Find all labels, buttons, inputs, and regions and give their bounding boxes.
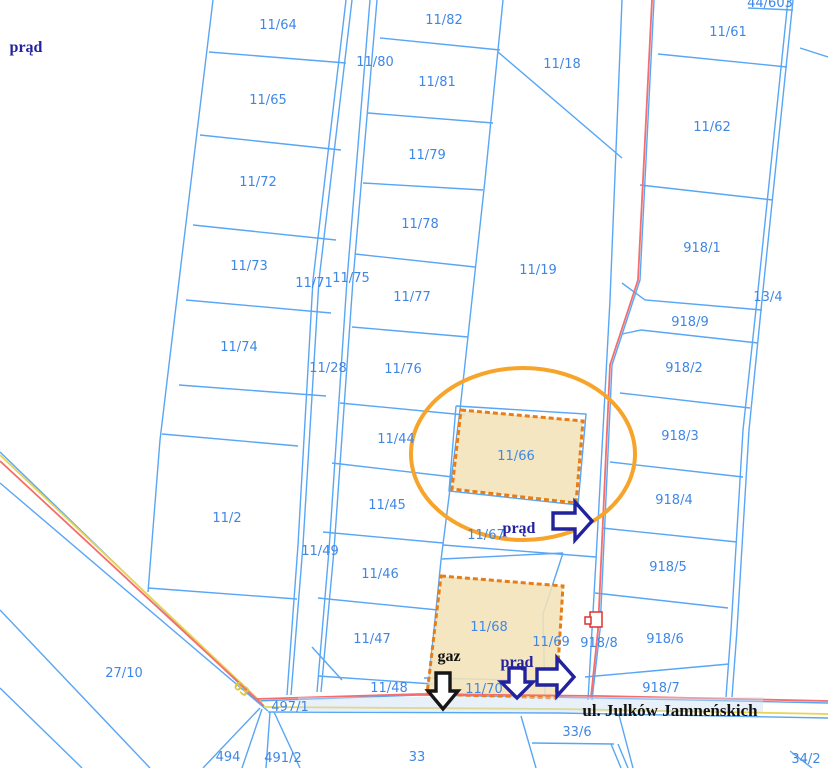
- sep-918-5-918-6: [595, 593, 728, 608]
- parcel-33-6-west: [521, 716, 536, 768]
- parcel-label-11-80: 11/80: [356, 55, 393, 70]
- sep-918-6-918-7: [585, 664, 729, 677]
- parcel-label-33: 33: [409, 750, 426, 765]
- parcel-label-11-47: 11/47: [353, 632, 390, 647]
- sep-11-73-11-74: [186, 300, 331, 313]
- power-line-east-road: [591, 0, 652, 697]
- parcel-label-918-6: 918/6: [646, 632, 683, 647]
- sep-11-74-south: [179, 385, 326, 396]
- parcel-label-918-1: 918/1: [683, 241, 720, 256]
- sep-11-46-11-47: [318, 598, 438, 610]
- street-name-label: ul. Julków Jamneńskich: [582, 701, 758, 720]
- parcel-label-11-62: 11/62: [693, 120, 730, 135]
- parcel-label-918-4: 918/4: [655, 493, 692, 508]
- parcel-label-11-67: 11/67: [467, 528, 504, 543]
- topright-branch-line: [800, 48, 828, 57]
- parcel-label-11-74: 11/74: [220, 340, 257, 355]
- parcel-label-11-66: 11/66: [497, 449, 534, 464]
- parcel-label-11-44: 11/44: [377, 432, 414, 447]
- strip-11-80-east: [321, 0, 377, 692]
- parcel-label-33-6: 33/6: [562, 725, 591, 740]
- building-outline-918-8: [590, 612, 602, 627]
- parcel-label-11-71: 11/71: [295, 276, 332, 291]
- strip-13-4-east: [732, 0, 793, 697]
- parcel-label-918-8: 918/8: [580, 636, 617, 651]
- parcel-label-497-1: 497/1: [271, 700, 308, 715]
- sep-918-4-918-5: [602, 528, 737, 542]
- parcel-33-6-east: [619, 715, 633, 768]
- parcel-label-44-603-clipped: 44/603: [747, 0, 793, 11]
- parcel-label-11-79: 11/79: [408, 148, 445, 163]
- parcel-label-918-7: 918/7: [642, 681, 679, 696]
- sep-11-82-11-81: [380, 38, 500, 50]
- utility-label-prad-mid: prąd: [503, 520, 536, 537]
- sep-11-45-11-46: [323, 532, 443, 543]
- parcel-label-11-76: 11/76: [384, 362, 421, 377]
- parcel-label-11-18: 11/18: [543, 57, 580, 72]
- parcel-label-11-2: 11/2: [212, 511, 241, 526]
- sep-11-62-918-1: [640, 185, 773, 200]
- parcel-label-11-72: 11/72: [239, 175, 276, 190]
- parcel-label-11-61: 11/61: [709, 25, 746, 40]
- parcel-11-2-north: [162, 434, 298, 446]
- parcel-label-11-70: 11/70: [465, 682, 502, 697]
- southwest-line: [0, 688, 82, 768]
- parcel-label-11-73: 11/73: [230, 259, 267, 274]
- leftcol-west-boundary: [148, 0, 213, 592]
- parcel-label-11-75: 11/75: [332, 271, 369, 286]
- parcel-label-11-68: 11/68: [470, 620, 507, 635]
- parcel-label-918-3: 918/3: [661, 429, 698, 444]
- parcel-label-11-81: 11/81: [418, 75, 455, 90]
- sep-918-9-918-2: [622, 330, 758, 343]
- building-outline-918-8-annex: [585, 617, 591, 624]
- sep-918-1-918-9: [622, 283, 762, 310]
- sep-11-79-11-78: [363, 183, 483, 190]
- sep-11-77-11-76: [352, 327, 468, 337]
- parcel-label-11-64: 11/64: [259, 18, 296, 33]
- parcel-label-34-2: 34/2: [791, 752, 820, 767]
- parcel-label-11-28: 11/28: [309, 361, 346, 376]
- sep-11-76-11-44: [340, 403, 465, 415]
- utility-label-prad-bottom: prąd: [501, 654, 534, 671]
- parcel-label-918-2: 918/2: [665, 361, 702, 376]
- parcel-33-6-south: [532, 743, 614, 744]
- parcel-label-11-49: 11/49: [301, 544, 338, 559]
- sep-11-78-11-77: [355, 254, 475, 267]
- utility-label-gaz: gaz: [437, 648, 460, 665]
- parcel-label-11-65: 11/65: [249, 93, 286, 108]
- junction-fan-2: [242, 709, 262, 768]
- parcel-label-918-9: 918/9: [671, 315, 708, 330]
- parcel-label-491-2: 491/2: [264, 751, 301, 766]
- parcel-label-918-5: 918/5: [649, 560, 686, 575]
- parcel-label-11-48: 11/48: [370, 681, 407, 696]
- map-canvas: prąd11/6411/8244/60311/6111/8011/8111/18…: [0, 0, 828, 768]
- sep-11-72-11-73: [193, 225, 336, 240]
- utility-label-prad-topleft: prąd: [10, 39, 43, 56]
- parcel-label-11-45: 11/45: [368, 498, 405, 513]
- parcel-label-494: 494: [216, 750, 241, 765]
- sep-11-64-11-65: [209, 52, 346, 63]
- parcel-label-11-69: 11/69: [532, 635, 569, 650]
- sep-11-65-11-72: [200, 135, 341, 150]
- parcel-label-11-77: 11/77: [393, 290, 430, 305]
- sep-918-2-918-3: [620, 393, 750, 408]
- sep-11-44-11-45: [332, 463, 453, 477]
- cadastral-map-svg: prąd11/6411/8244/60311/6111/8011/8111/18…: [0, 0, 828, 768]
- parcel-label-13-4: 13/4: [753, 290, 782, 305]
- parcel-label-11-46: 11/46: [361, 567, 398, 582]
- strip-11-71-west: [287, 0, 346, 695]
- parcel-label-11-19: 11/19: [519, 263, 556, 278]
- parcel-label-27-10: 27/10: [105, 666, 142, 681]
- parcel-11-68-north: [442, 553, 563, 559]
- strip-11-80-west: [317, 0, 370, 692]
- corner-cut-11-47: [312, 647, 342, 680]
- parcel-11-2-south: [148, 588, 297, 599]
- road-east-east-edge: [592, 0, 654, 700]
- parcel-label-11-82: 11/82: [425, 13, 462, 28]
- sep-11-61-11-62: [658, 54, 787, 67]
- sep-11-81-11-79: [368, 113, 493, 123]
- parcel-label-11-78: 11/78: [401, 217, 438, 232]
- parcel-27-10-west: [0, 610, 150, 768]
